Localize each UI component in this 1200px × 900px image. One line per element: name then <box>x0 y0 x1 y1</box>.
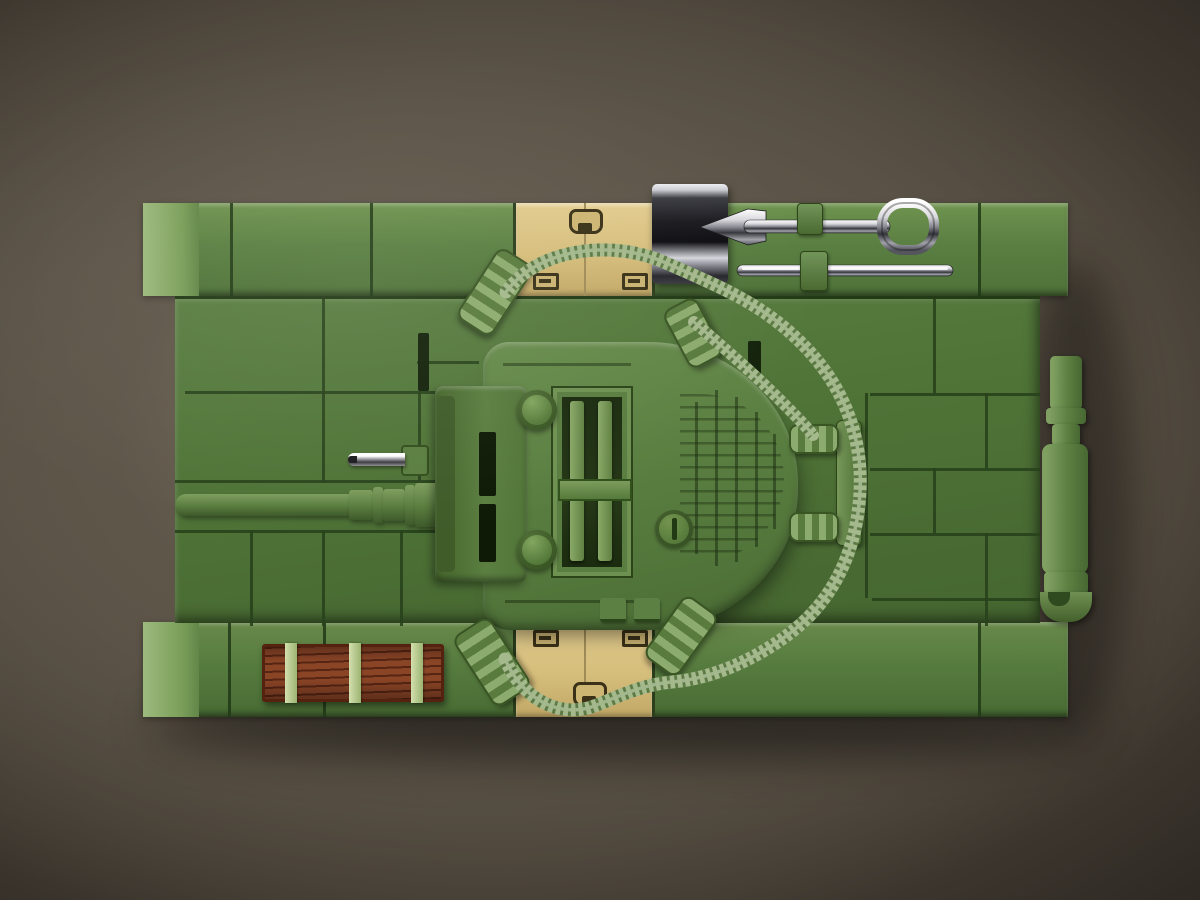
scene <box>0 0 1200 900</box>
hose-main <box>505 250 860 710</box>
tools-and-hoses-layer <box>0 0 1200 900</box>
fender-tab <box>634 598 660 622</box>
stowage-rod <box>737 265 953 276</box>
fender-tab <box>600 598 626 622</box>
tool-clip <box>800 251 828 291</box>
tool-clip <box>797 203 823 235</box>
